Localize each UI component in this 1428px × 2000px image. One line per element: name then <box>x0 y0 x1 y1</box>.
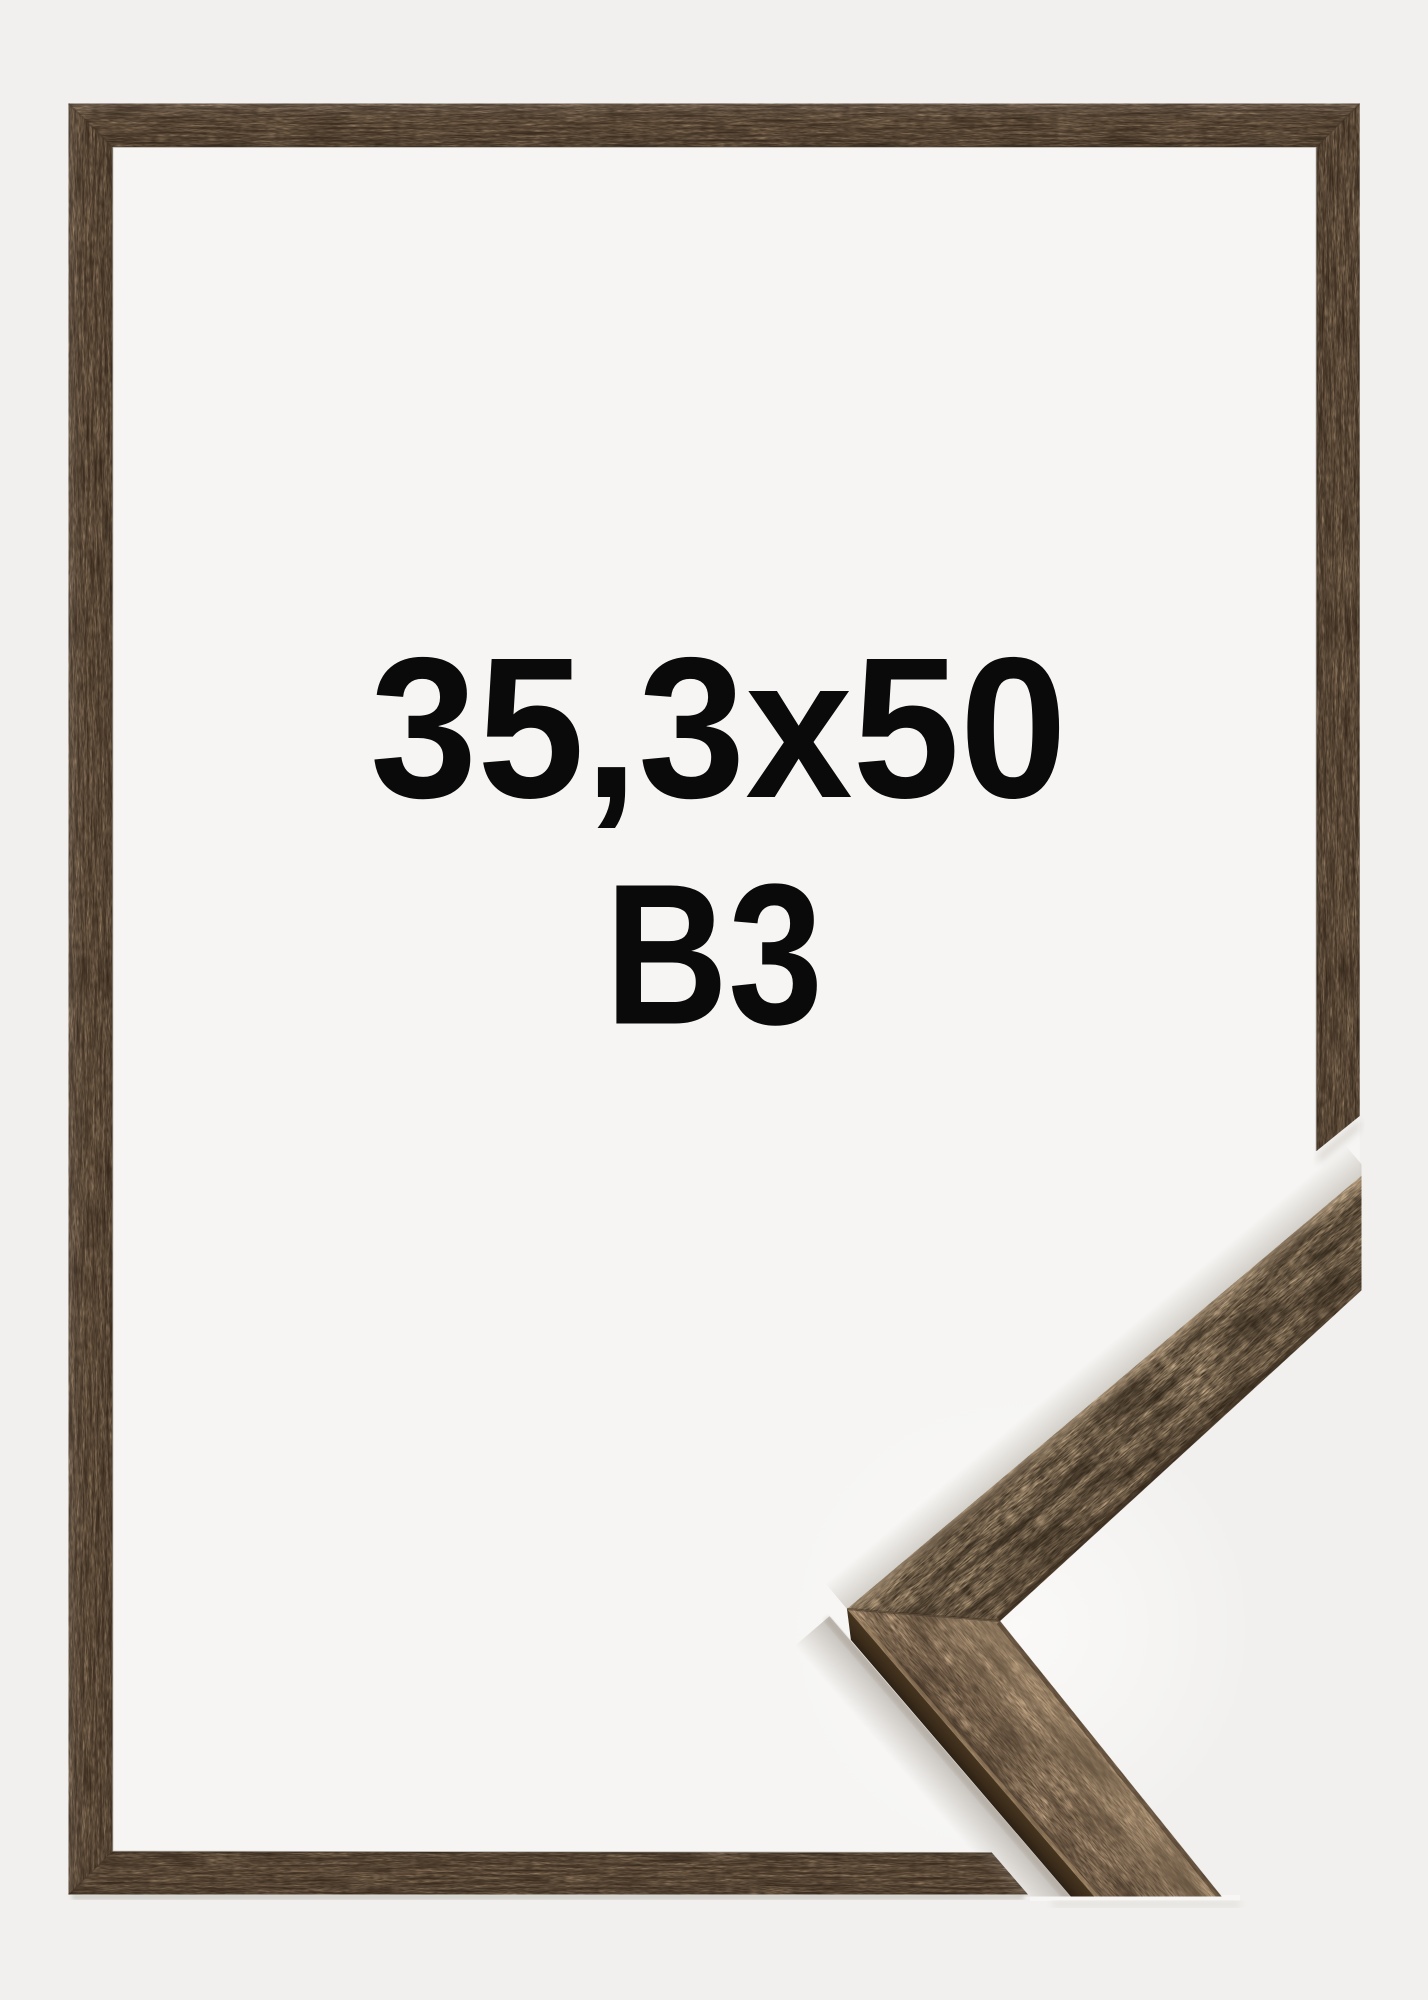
svg-text:35,3x50: 35,3x50 <box>370 615 1067 840</box>
svg-text:B3: B3 <box>605 842 823 1067</box>
